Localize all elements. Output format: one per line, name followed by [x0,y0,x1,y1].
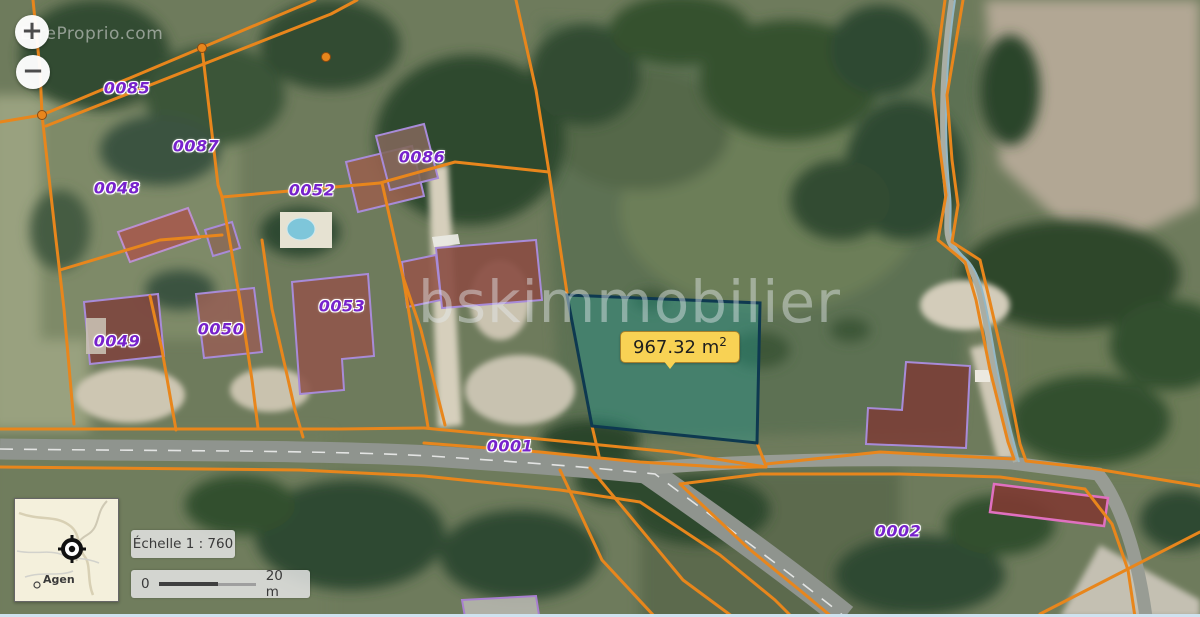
area-label-pointer [663,360,677,369]
scale-bar-segment-dark [159,582,218,586]
zoom-out-button[interactable]: − [16,55,50,89]
zoom-in-button[interactable]: + [15,15,49,49]
minimap-city-marker [34,582,40,588]
scale-bar-start: 0 [141,576,150,592]
aerial-imagery [0,0,1200,617]
scale-bar-segment-light [218,583,256,586]
area-value: 967.32 m [633,337,719,358]
scale-ratio-label: Échelle 1 : 760 [133,536,233,552]
scale-ratio-panel: Échelle 1 : 760 [131,530,235,558]
scale-bar-end: 20 m [266,568,300,600]
area-label: 967.32 m2 [620,331,740,363]
area-exponent: 2 [719,335,727,349]
minimap: Agen [14,498,119,602]
minimap-city-label: Agen [43,573,75,586]
cadastre-map-viewport[interactable]: EtreProprio.com bskimmobilier + − 008500… [0,0,1200,617]
scale-bar-panel: 0 20 m [131,570,310,598]
highlighted-parcel[interactable] [567,295,760,443]
